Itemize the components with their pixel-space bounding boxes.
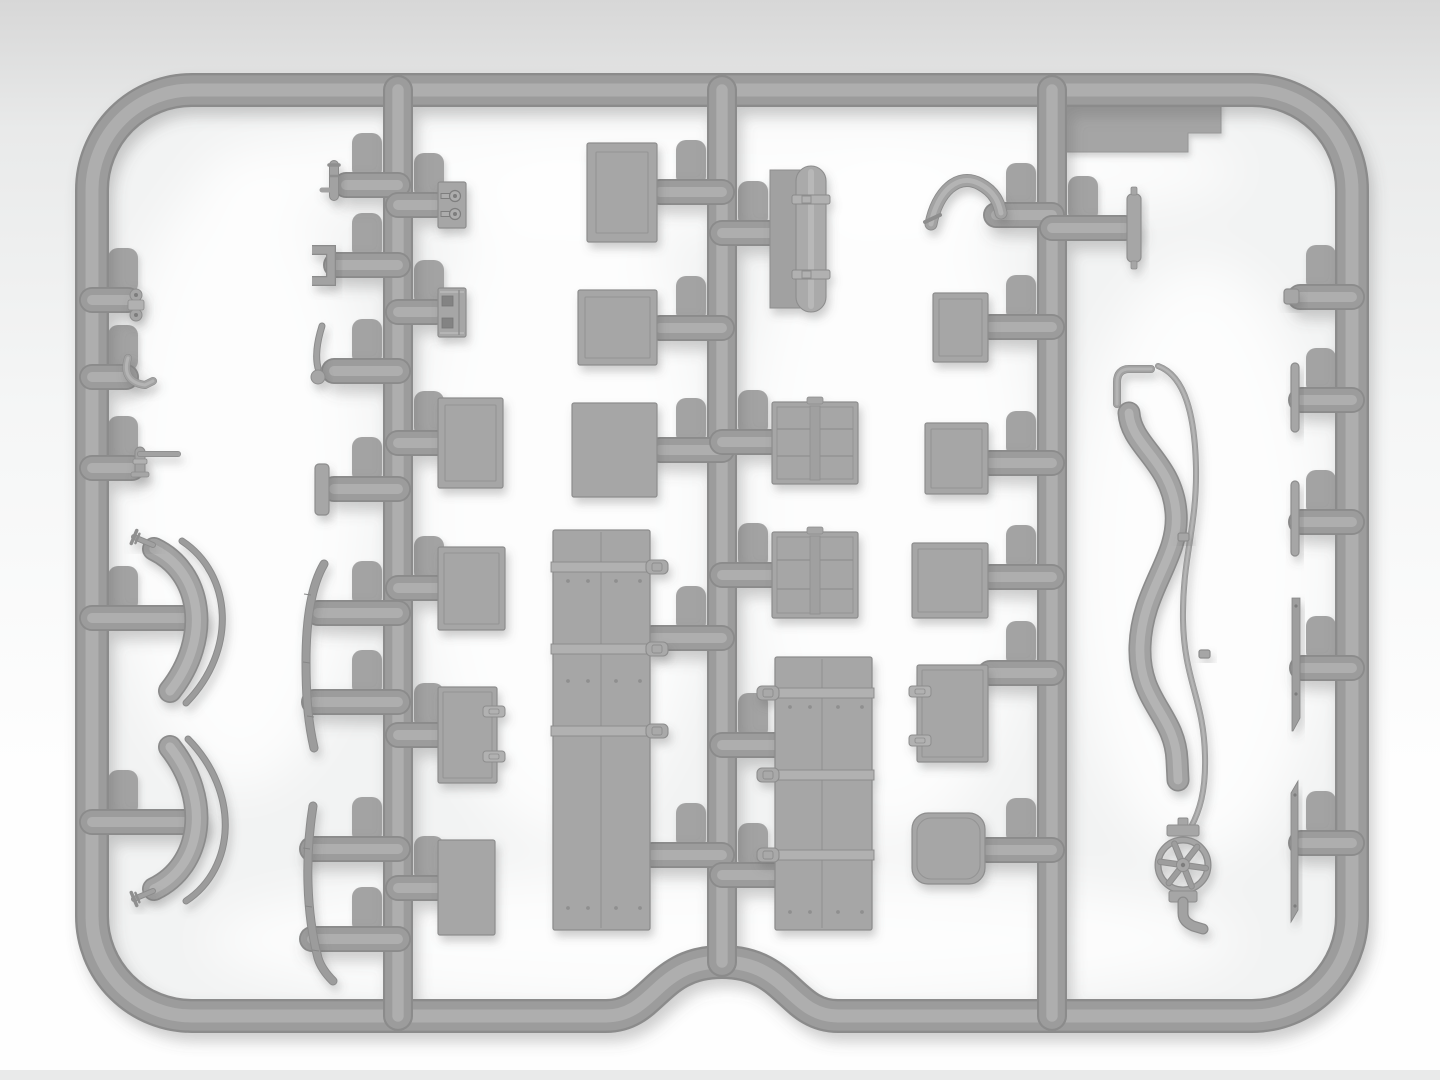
crate-latched-latch-1: [483, 751, 505, 762]
buckle-plate-hole-0: [453, 194, 457, 198]
stowage-locker-rivet-2-2: [614, 906, 618, 910]
stowage-locker-strap-1: [551, 644, 652, 654]
pin-bar-body: [1127, 194, 1141, 262]
box-plain-b-body: [572, 403, 657, 497]
stowage-locker-rivet-1-0: [566, 679, 570, 683]
stowage-chest-strap-2: [773, 850, 874, 860]
tarp-roll: [770, 166, 830, 312]
strip-short-b: [1291, 481, 1299, 556]
stowage-chest-rivet-1-1: [808, 910, 812, 914]
stowage-chest-rivet-0-2: [836, 705, 840, 709]
stowage-locker-rivet-1-3: [638, 679, 642, 683]
line-collar-a: [1178, 533, 1189, 541]
elbow-pipe-fitting-foot-flange: [131, 472, 149, 477]
crate-sq-a-body: [933, 293, 988, 362]
crate-sq-c-body: [912, 543, 988, 618]
small-plank-body: [315, 464, 329, 515]
table-edge-strip: [0, 1070, 1440, 1080]
stowage-chest-rivet-0-1: [808, 705, 812, 709]
valve-handwheel-fitting-top: [1167, 825, 1199, 836]
box-plain-a-body: [438, 840, 495, 935]
sprue-photo: [0, 0, 1440, 1080]
line-collar-a-body: [1178, 533, 1189, 541]
buckle-plate-hole-1: [453, 212, 457, 216]
box-plain-b: [572, 403, 657, 497]
panel-crate-a: [772, 397, 858, 484]
crate-sq-c: [912, 543, 988, 618]
stowage-locker: [551, 530, 668, 930]
crate-lid-medium-body: [578, 290, 657, 365]
box-plain-a: [438, 840, 495, 935]
crate-lid-large: [587, 143, 657, 242]
stowage-chest-rivet-1-2: [836, 910, 840, 914]
pin-bar-nub-bottom: [1131, 261, 1137, 269]
crate-bordered: [438, 547, 505, 630]
latch-plate-hole-1: [442, 318, 453, 328]
strip-long-a-hole-0: [1294, 604, 1297, 607]
soft-case: [912, 813, 985, 884]
strip-long-a-hole-1: [1294, 692, 1297, 695]
crate-latched: [438, 687, 505, 783]
strip-short-b-body: [1291, 481, 1299, 556]
crate-lid-large-body: [587, 143, 657, 242]
latch-plate: [438, 288, 466, 337]
strip-long-b-body: [1291, 781, 1298, 922]
stowage-locker-rivet-0-1: [586, 579, 590, 583]
stowage-locker-rivet-0-0: [566, 579, 570, 583]
shift-lever-knob: [311, 370, 325, 384]
crate-bordered-body: [438, 547, 505, 630]
stowage-locker-buckle-2: [646, 724, 668, 738]
strip-long-b: [1291, 781, 1298, 922]
small-clamp-fitting-hole-bottom: [134, 313, 138, 317]
stowage-chest-rivet-0-0: [788, 705, 792, 709]
stowage-chest-buckle-2: [757, 848, 779, 862]
panel-crate-b-tab: [807, 527, 823, 534]
stowage-chest-rivet-1-0: [788, 910, 792, 914]
strip-long-a-body: [1292, 598, 1300, 731]
stowage-chest-strap-1: [773, 770, 874, 780]
line-collar-b: [1199, 650, 1210, 658]
line-collar-b-body: [1199, 650, 1210, 658]
latch-plate-base: [438, 288, 466, 337]
stowage-locker-rivet-2-1: [586, 906, 590, 910]
small-clamp-fitting: [128, 289, 144, 321]
bay-glow-3: [1070, 260, 1330, 860]
panel-crate-a-center-rib: [810, 406, 820, 480]
crate-sq-b-body: [925, 423, 988, 494]
panel-crate-b: [772, 527, 858, 618]
buckle-plate: [438, 182, 466, 228]
sprue-render-canvas: [0, 0, 1440, 1080]
small-clamp-fitting-band: [128, 300, 144, 310]
crate-latched-body: [438, 687, 497, 783]
latch-plate-hole-0: [442, 296, 453, 306]
valve-handwheel-hub-hole: [1181, 863, 1185, 867]
stowage-chest: [757, 657, 874, 930]
strip-short-a: [1291, 363, 1299, 432]
crate-sq-a: [933, 293, 988, 362]
stowage-locker-rivet-0-3: [638, 579, 642, 583]
latched-box-body: [917, 665, 988, 762]
crate-lid-medium: [578, 290, 657, 365]
panel-crate-b-center-rib: [810, 536, 820, 614]
crate-lid-small-body: [438, 398, 503, 488]
stowage-locker-rivet-1-1: [586, 679, 590, 683]
stowage-locker-buckle-0: [646, 560, 668, 574]
latched-box: [909, 665, 988, 762]
strip-long-b-hole-1: [1293, 904, 1296, 907]
stowage-locker-rivet-1-2: [614, 679, 618, 683]
pin-bar: [1127, 187, 1141, 269]
stowage-chest-strap-0: [773, 688, 874, 698]
stowage-locker-rivet-2-3: [638, 906, 642, 910]
strip-short-a-body: [1291, 363, 1299, 432]
latched-box-latch-0: [909, 686, 931, 697]
strip-long-a: [1292, 598, 1300, 731]
crate-sq-b: [925, 423, 988, 494]
small-plank: [315, 464, 329, 515]
elbow-pipe-fitting-collar: [133, 459, 147, 464]
stowage-chest-buckle-1: [757, 768, 779, 782]
stowage-locker-strap-2: [551, 726, 652, 736]
small-clamp-fitting-hole-top: [134, 293, 138, 297]
stowage-locker-buckle-1: [646, 642, 668, 656]
crate-latched-latch-0: [483, 706, 505, 717]
stowage-chest-buckle-0: [757, 686, 779, 700]
strip-long-b-hole-0: [1293, 793, 1296, 796]
crate-lid-small: [438, 398, 503, 488]
soft-case-body: [912, 813, 985, 884]
panel-crate-a-tab: [807, 397, 823, 404]
stowage-locker-rivet-2-0: [566, 906, 570, 910]
latched-box-latch-1: [909, 735, 931, 746]
buckle-plate-base: [438, 182, 466, 228]
stowage-chest-rivet-0-3: [860, 705, 864, 709]
stowage-locker-rivet-0-2: [614, 579, 618, 583]
stowage-chest-rivet-1-3: [860, 910, 864, 914]
square-nub-body: [1284, 289, 1299, 304]
stowage-locker-strap-0: [551, 562, 652, 572]
square-nub: [1284, 289, 1299, 304]
pin-bar-nub-top: [1131, 187, 1137, 195]
